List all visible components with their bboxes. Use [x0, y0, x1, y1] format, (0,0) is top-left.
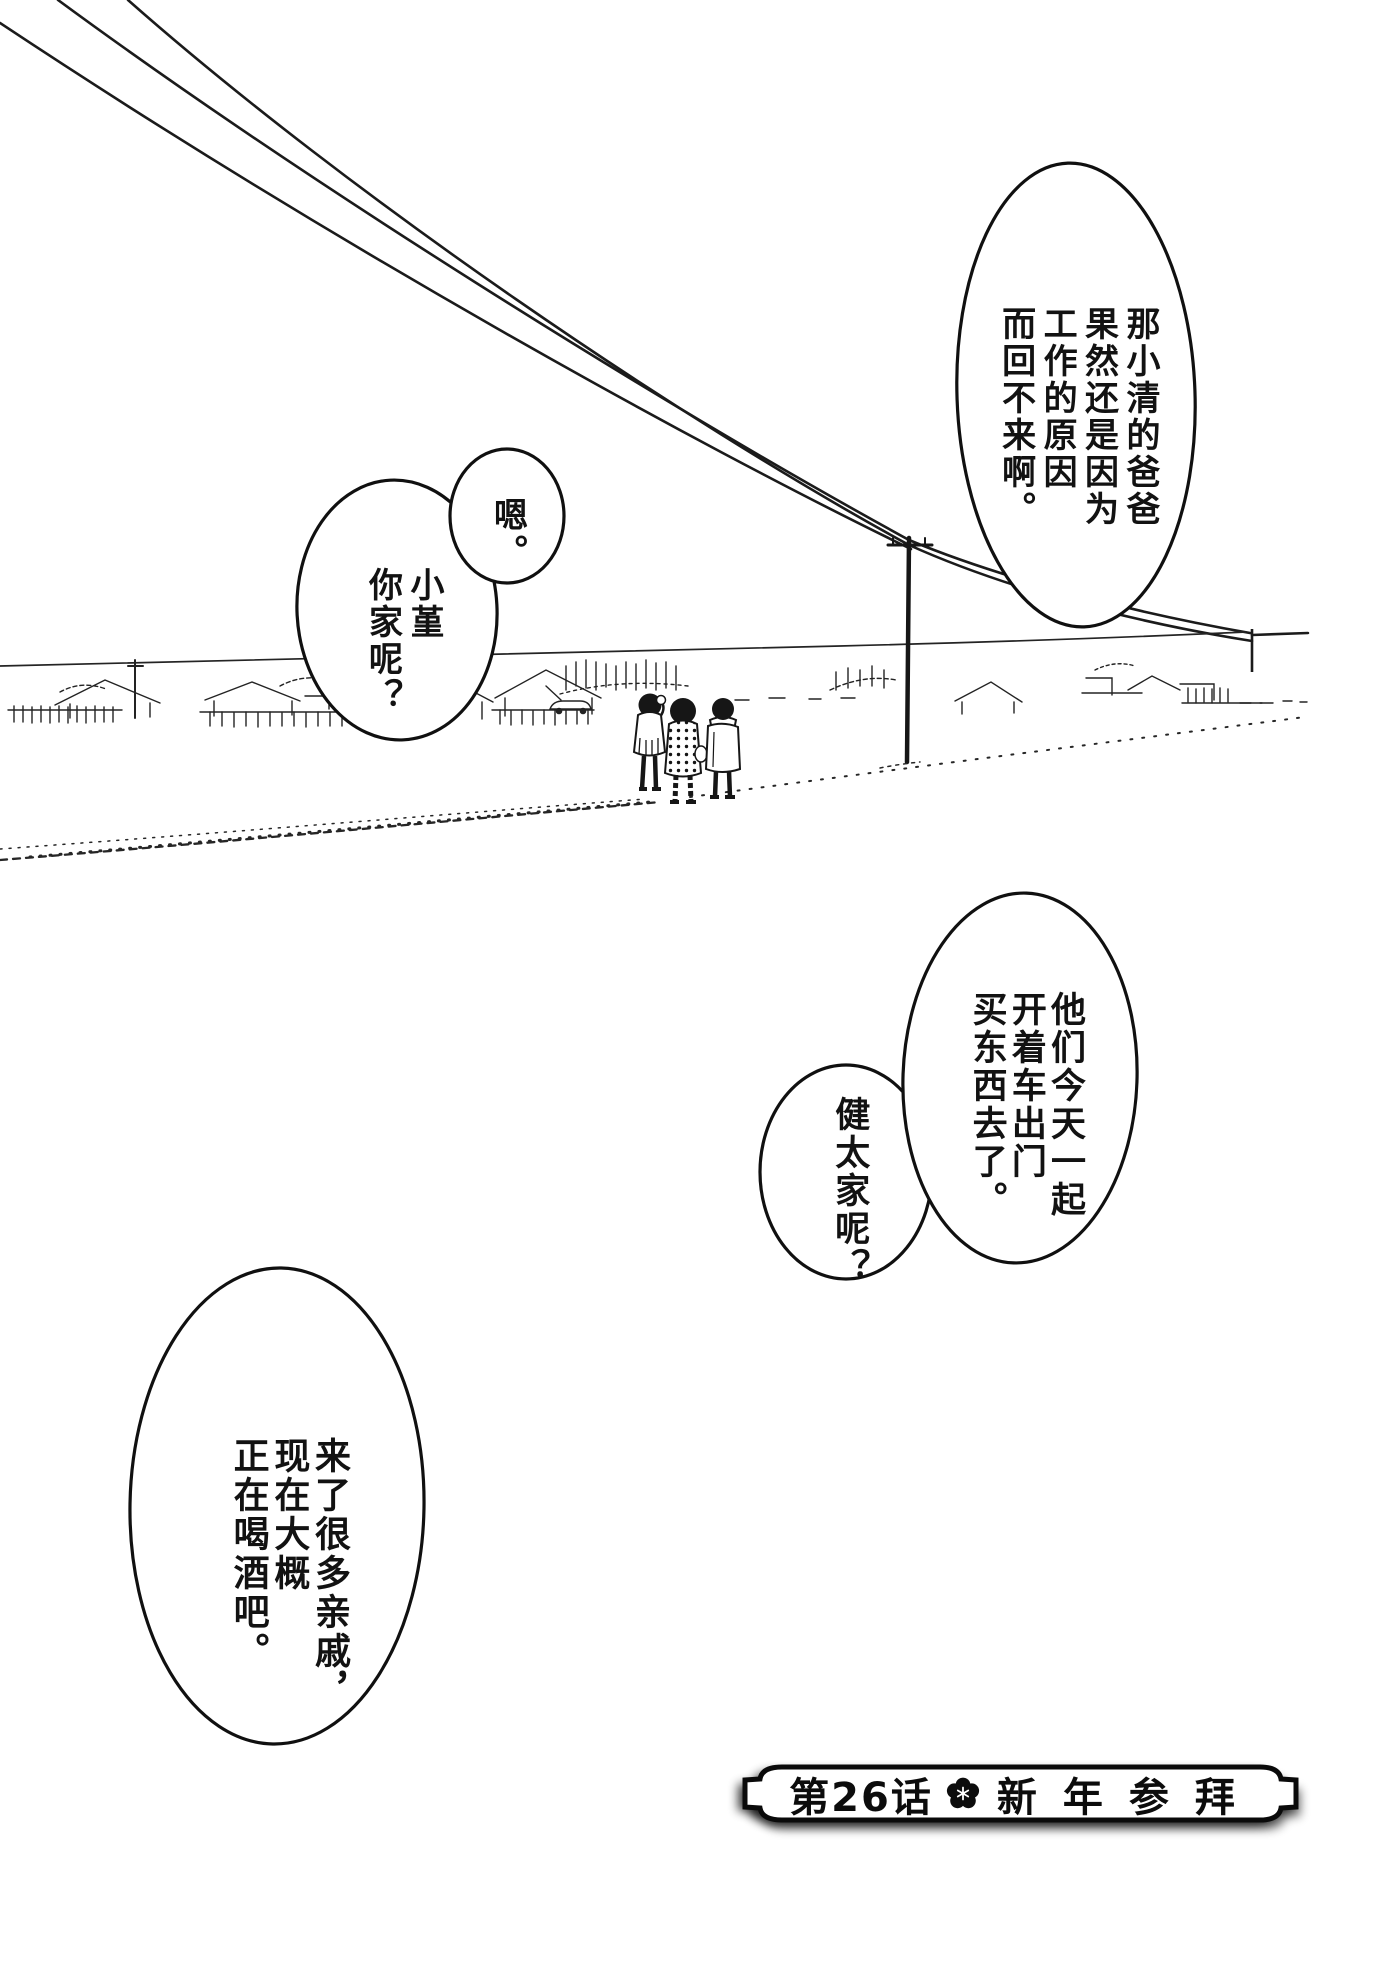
bubble-line: 健太家呢？ [829, 1096, 868, 1286]
bubble-line: 现在大概 [268, 1437, 309, 1710]
three-children-walking [634, 694, 740, 803]
bubble-text-kenta-answer: 他们今天一起 开着车出门 买东西去了。 [966, 991, 1084, 1219]
bubble-line: 你家呢？ [361, 567, 402, 715]
bubble-line: 他们今天一起 [1045, 991, 1084, 1219]
bubble-line: 小堇 [403, 567, 444, 715]
scene-art [0, 0, 1400, 1984]
bubble-text-father-reason: 那小清的爸爸 果然还是因为 工作的原因 而回不来啊。 [994, 306, 1160, 528]
bubble-line: 正在喝酒吧。 [227, 1437, 268, 1710]
chapter-title: 新年参拜 [997, 1765, 1261, 1823]
bubble-line: 而回不来啊。 [994, 306, 1035, 528]
bubble-line: 果然还是因为 [1077, 306, 1118, 528]
bubble-line: 开着车出门 [1006, 991, 1045, 1219]
chapter-number: 第26话 [789, 1765, 933, 1823]
bubble-text-relatives-answer: 来了很多亲戚， 现在大概 正在喝酒吧。 [227, 1437, 349, 1710]
bubble-text-sumire-question: 小堇 你家呢？ [361, 567, 444, 715]
bubble-line: 来了很多亲戚， [308, 1437, 349, 1710]
bubble-text-acknowledge: 嗯。 [486, 497, 527, 571]
bubble-text-kenta-question: 健太家呢？ [829, 1096, 868, 1286]
bubble-line: 买东西去了。 [966, 991, 1005, 1219]
horizon-line [0, 632, 1246, 666]
bubble-line: 嗯。 [486, 497, 527, 571]
chapter-banner-text: 第26话 新年参拜 [758, 1769, 1292, 1819]
manga-page: 那小清的爸爸 果然还是因为 工作的原因 而回不来啊。 嗯。 小堇 你家呢？ 他们… [0, 0, 1400, 1984]
plum-blossom-icon [945, 1776, 981, 1812]
bubble-line: 那小清的爸爸 [1119, 306, 1160, 528]
bubble-line: 工作的原因 [1036, 306, 1077, 528]
telephone-pole [888, 538, 932, 762]
